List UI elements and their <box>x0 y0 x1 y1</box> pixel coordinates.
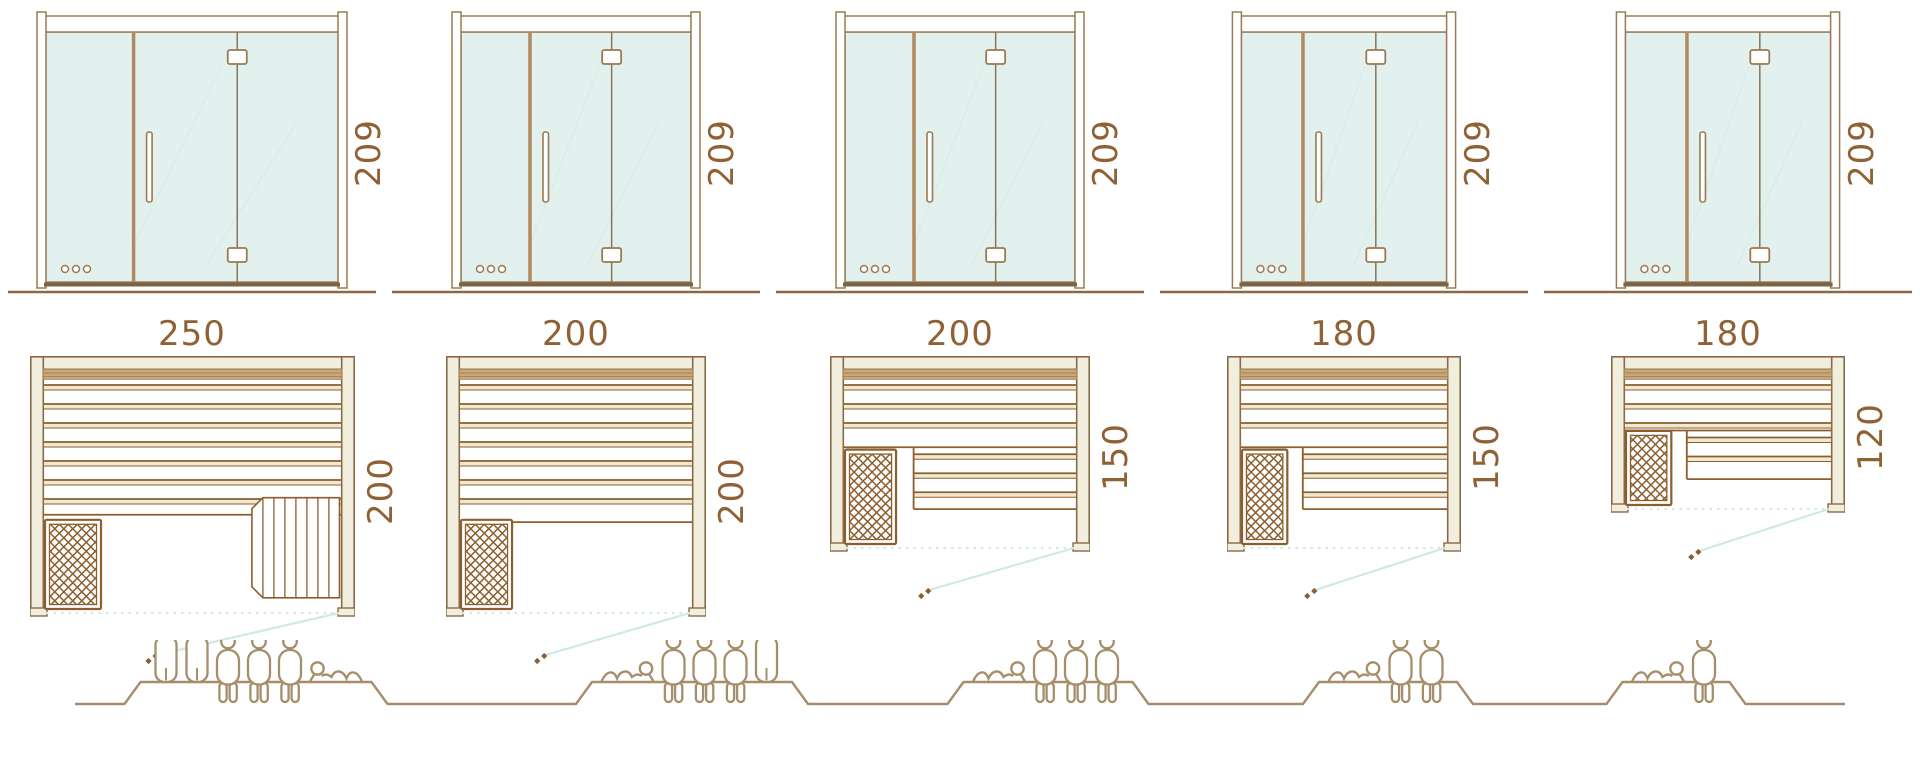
front-height-dimension: 209 <box>1842 119 1882 187</box>
glass-front-block: 209 <box>4 8 380 300</box>
sauna-column-200x200: 209 200 200 <box>384 0 768 698</box>
floor-plan-block: 200 150 <box>830 300 1090 633</box>
floor-plan-block: 180 150 <box>1227 300 1461 633</box>
front-height-dimension: 209 <box>1086 119 1126 187</box>
front-height-dimension: 209 <box>702 119 742 187</box>
floor-plan <box>1227 356 1461 629</box>
front-height-dimension: 209 <box>1458 119 1498 187</box>
sauna-column-250x200: 209 250 200 <box>0 0 384 698</box>
plan-width-dimension: 200 <box>446 314 706 356</box>
plan-depth-dimension: 150 <box>1096 423 1136 491</box>
plan-width-dimension: 180 <box>1611 314 1845 356</box>
sauna-column-180x150: 209 180 150 <box>1152 0 1536 698</box>
glass-front-block: 209 <box>1540 8 1916 300</box>
floor-plan-block: 250 200 <box>30 300 355 698</box>
floor-plan-block: 180 120 <box>1611 300 1845 594</box>
people-group-5 <box>1633 640 1716 702</box>
capacity-people-strip <box>0 640 1920 764</box>
floor-plan <box>830 356 1090 629</box>
front-height-dimension: 209 <box>349 119 389 187</box>
floor-plan <box>1611 356 1845 590</box>
plan-depth-dimension: 150 <box>1467 423 1507 491</box>
people-group-2 <box>602 640 782 702</box>
plan-width-dimension: 250 <box>30 314 355 356</box>
glass-front-block: 209 <box>1156 8 1532 300</box>
plan-inner: 150 <box>830 356 1090 633</box>
sauna-size-comparison-diagram: 209 250 200 209 200 200 209 20 <box>0 0 1920 764</box>
glass-front-block: 209 <box>388 8 764 300</box>
plan-width-dimension: 180 <box>1227 314 1461 356</box>
columns-row: 209 250 200 209 200 200 209 20 <box>0 0 1920 698</box>
people-group-1 <box>151 640 362 702</box>
plan-width-dimension: 200 <box>830 314 1090 356</box>
plan-inner: 150 <box>1227 356 1461 633</box>
plan-depth-dimension: 120 <box>1851 403 1891 471</box>
plan-depth-dimension: 200 <box>712 457 752 525</box>
glass-front-elevation <box>4 8 380 298</box>
sauna-column-180x120: 209 180 120 <box>1536 0 1920 698</box>
plan-inner: 120 <box>1611 356 1845 594</box>
people-group-3 <box>974 640 1119 702</box>
glass-front-block: 209 <box>772 8 1148 300</box>
sauna-column-200x150: 209 200 150 <box>768 0 1152 698</box>
people-group-4 <box>1329 640 1443 702</box>
floor-plan-block: 200 200 <box>446 300 706 698</box>
